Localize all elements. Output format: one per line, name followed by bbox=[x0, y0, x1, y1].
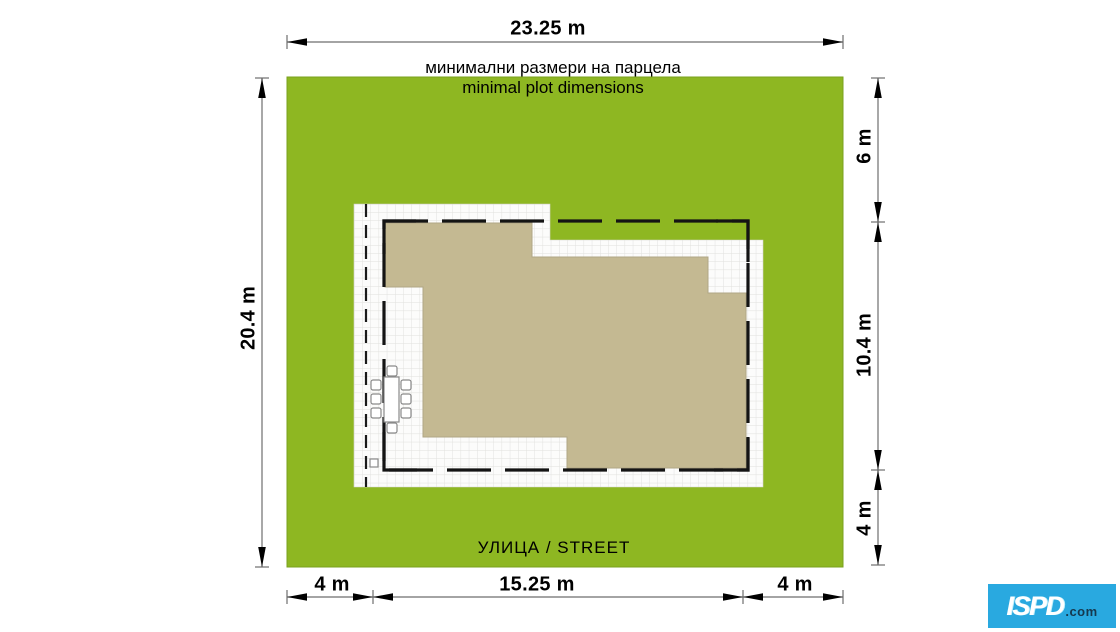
dimension-label-right-bottom: 4 m bbox=[854, 500, 877, 535]
dimension-label-top-width: 23.25 m bbox=[510, 18, 586, 41]
plot-title-bulgarian: минимални размери на парцела bbox=[425, 58, 681, 78]
site-plan-page: 23.25 m минимални размери на парцела min… bbox=[0, 0, 1120, 632]
dimension-label-right-top: 6 m bbox=[854, 128, 877, 163]
chair bbox=[401, 394, 411, 404]
chair bbox=[371, 408, 381, 418]
ispd-logo[interactable]: ISPD .com bbox=[988, 584, 1116, 628]
chair bbox=[401, 408, 411, 418]
dimension-label-bottom-left: 4 m bbox=[314, 574, 349, 597]
street-label: УЛИЦА / STREET bbox=[478, 538, 631, 558]
house-footprint bbox=[385, 223, 746, 468]
dimension-label-bottom-center: 15.25 m bbox=[499, 574, 575, 597]
plot-title-english: minimal plot dimensions bbox=[462, 78, 643, 98]
small-plan-marker bbox=[370, 459, 378, 467]
dimension-label-left-height: 20.4 m bbox=[238, 286, 261, 350]
chair bbox=[387, 423, 397, 433]
chair bbox=[371, 394, 381, 404]
chair bbox=[387, 366, 397, 376]
ispd-logo-brand: ISPD bbox=[1006, 593, 1063, 620]
chair bbox=[371, 380, 381, 390]
ispd-logo-suffix: .com bbox=[1065, 604, 1097, 619]
dimension-label-bottom-right: 4 m bbox=[777, 574, 812, 597]
chair bbox=[401, 380, 411, 390]
table bbox=[384, 377, 399, 422]
dimension-label-right-middle: 10.4 m bbox=[854, 313, 877, 377]
